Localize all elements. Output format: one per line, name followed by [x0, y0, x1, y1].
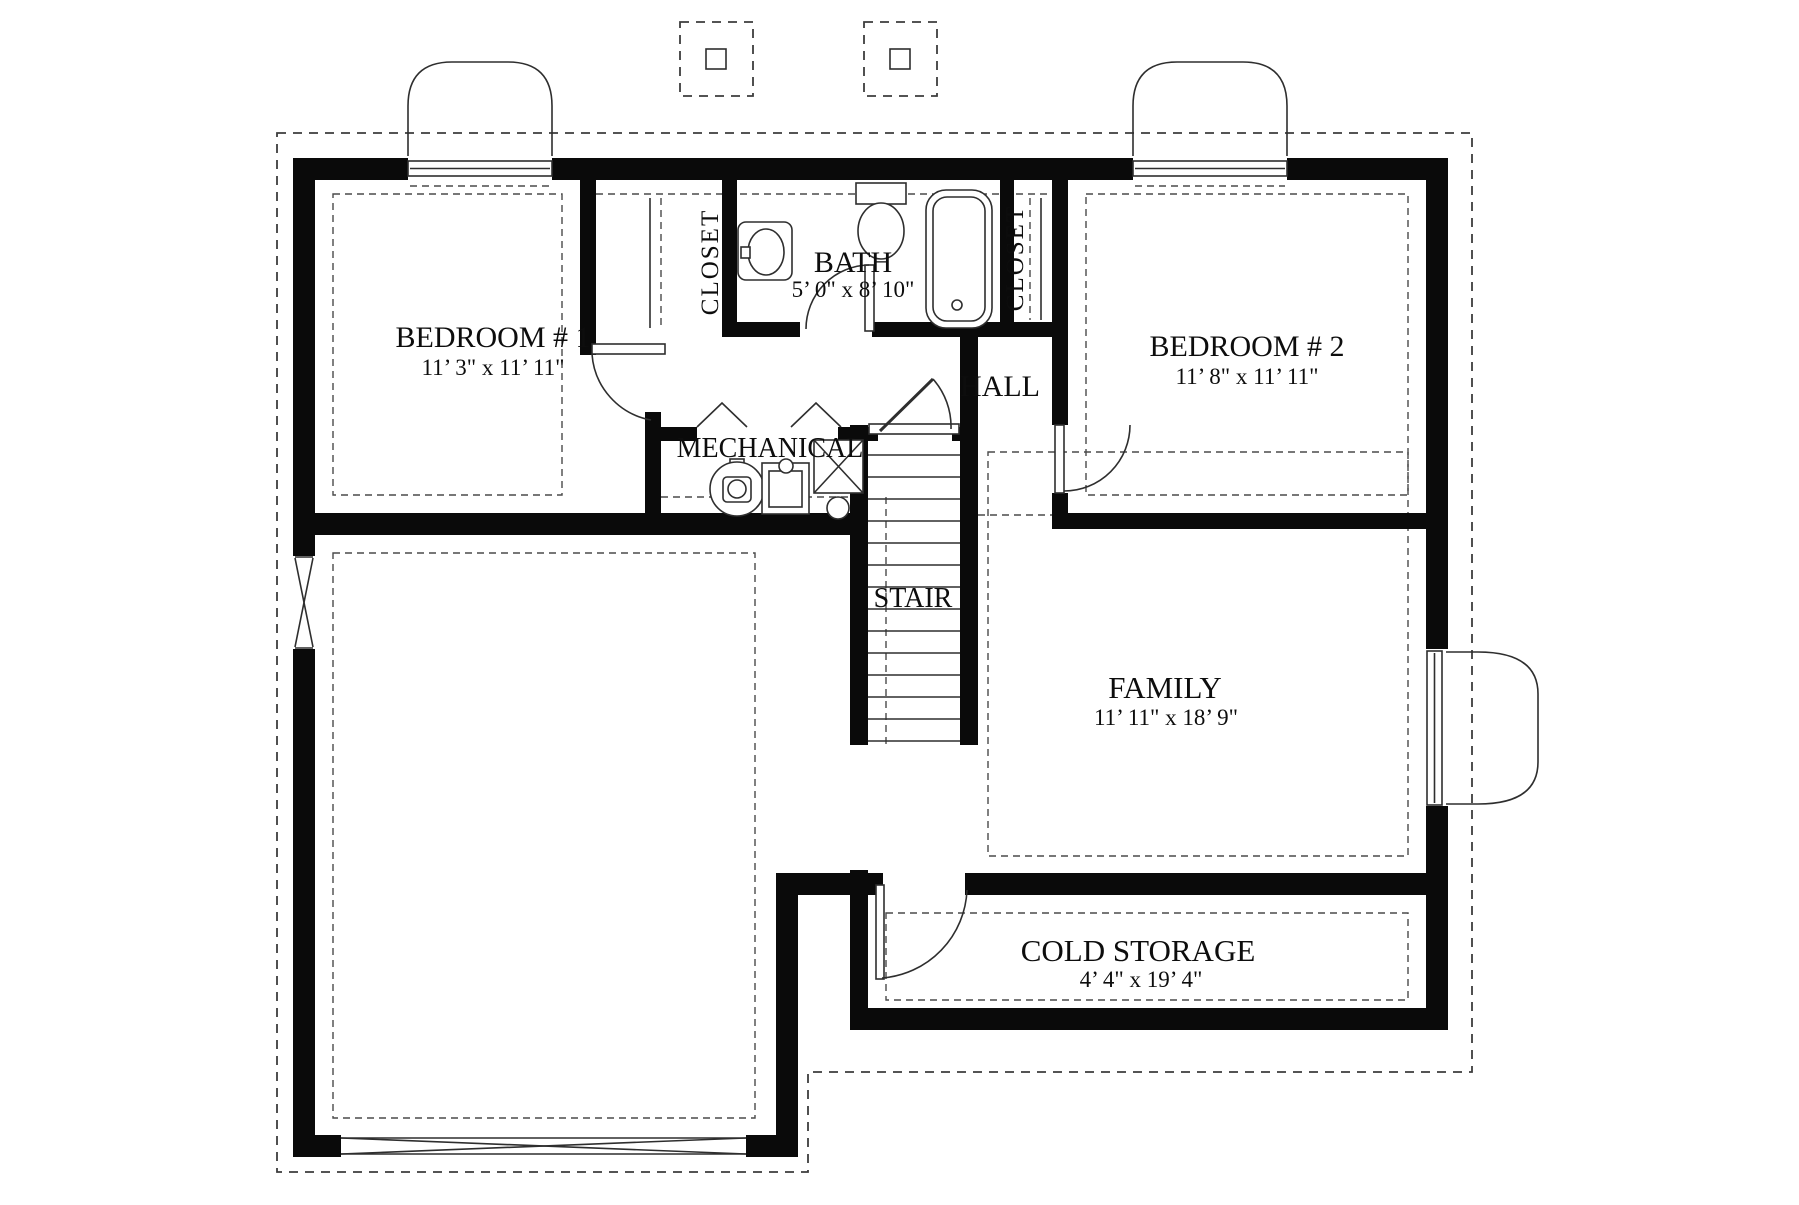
post-footings — [680, 22, 937, 96]
garage-door-opening — [341, 1138, 746, 1154]
floor-plan-page: BEDROOM # 1 11’ 3" x 11’ 11" BEDROOM # 2… — [0, 0, 1799, 1200]
wall-bottom-left-segment — [293, 1135, 341, 1157]
closet-left-label: CLOSET — [697, 209, 724, 315]
floor-plan-drawing: BEDROOM # 1 11’ 3" x 11’ 11" BEDROOM # 2… — [0, 0, 1799, 1200]
window-well-bedroom2 — [1133, 62, 1287, 156]
bedroom1-label: BEDROOM # 1 — [395, 321, 590, 354]
window-well-family — [1446, 652, 1538, 804]
wall-cold-storage-south — [850, 1008, 1448, 1030]
cold-storage-dims: 4’ 4" x 19’ 4" — [1080, 967, 1203, 992]
family-dashed-boundary — [988, 452, 1408, 856]
wall-bath-west — [722, 158, 737, 337]
post-left — [706, 49, 726, 69]
wall-left-upper — [293, 180, 315, 556]
left-wall-x-opening — [295, 557, 313, 648]
wall-bedroom2-west-upper — [1052, 158, 1068, 425]
garage-dashed-boundary — [333, 553, 755, 1118]
wall-bottom-right-segment — [746, 1135, 798, 1157]
post-right — [890, 49, 910, 69]
sink-fixture — [738, 222, 792, 280]
cold-storage-door — [876, 885, 967, 979]
bath-label: BATH — [814, 246, 892, 279]
wall-right-lower — [1426, 806, 1448, 1030]
wall-right-upper — [1426, 180, 1448, 649]
bath-dims: 5’ 0" x 8’ 10" — [792, 277, 915, 302]
bedroom2-door — [1055, 425, 1130, 493]
cold-storage-label: COLD STORAGE — [1021, 933, 1256, 968]
furnace — [762, 459, 809, 514]
wall-bedroom1-south — [293, 513, 868, 535]
bedroom1-dims: 11’ 3" x 11’ 11" — [421, 355, 564, 380]
wall-family-south-west — [776, 873, 883, 895]
sump-circle — [827, 497, 849, 519]
family-label: FAMILY — [1108, 670, 1221, 705]
wall-mechanical-west — [645, 412, 661, 535]
wall-bedroom2-south — [1052, 513, 1448, 529]
family-dims: 11’ 11" x 18’ 9" — [1094, 705, 1238, 730]
wall-top-center-segment — [552, 158, 1133, 180]
wall-top-right-segment — [1287, 158, 1448, 180]
window-well-bedroom1 — [408, 62, 552, 156]
water-heater — [710, 459, 764, 516]
bedroom1-door — [592, 344, 665, 420]
wall-garage-right — [776, 873, 798, 1135]
wall-left-lower — [293, 649, 315, 1156]
closet-right-label: CLOSET — [1002, 205, 1029, 311]
stair-label: STAIR — [874, 583, 953, 614]
bathtub-fixture — [926, 190, 992, 328]
bedroom2-dims: 11’ 8" x 11’ 11" — [1175, 364, 1318, 389]
mechanical-bifold-doors — [697, 403, 841, 427]
bedroom2-label: BEDROOM # 2 — [1149, 330, 1344, 363]
wall-top-left-segment — [293, 158, 408, 180]
hall-label: HALL — [960, 370, 1040, 403]
wall-family-south-east — [965, 873, 1448, 895]
wall-bath-south-west — [722, 322, 800, 337]
mechanical-label: MECHANICAL — [677, 433, 864, 464]
